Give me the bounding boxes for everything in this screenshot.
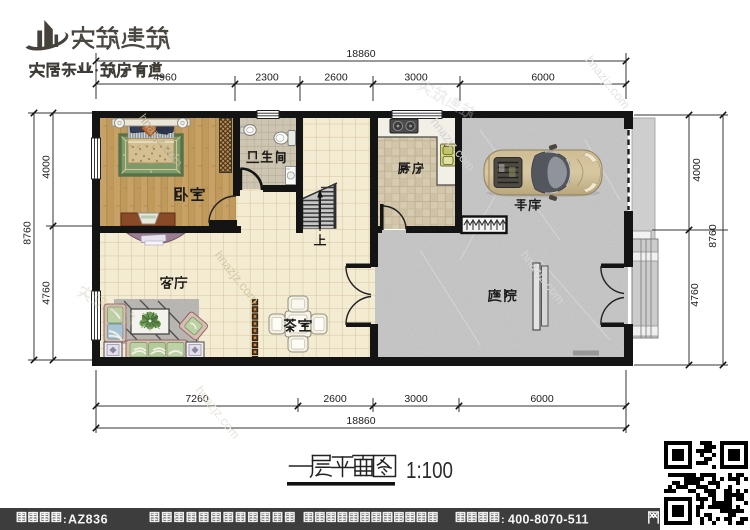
svg-text:6000: 6000 <box>531 72 555 84</box>
svg-text:2600: 2600 <box>324 72 348 84</box>
svg-text:2600: 2600 <box>323 393 347 405</box>
svg-text:400-8070-511: 400-8070-511 <box>508 513 589 527</box>
svg-text:1:100: 1:100 <box>406 457 453 483</box>
svg-text::: : <box>501 514 505 526</box>
svg-text::: : <box>63 514 67 526</box>
svg-text:hnazjz.com: hnazjz.com <box>193 383 243 441</box>
svg-text:4760: 4760 <box>689 283 701 307</box>
svg-text:4960: 4960 <box>153 72 177 84</box>
svg-text:2300: 2300 <box>255 72 279 84</box>
svg-text:6000: 6000 <box>530 393 554 405</box>
svg-text:4000: 4000 <box>691 158 703 182</box>
svg-text:4000: 4000 <box>41 155 53 179</box>
svg-text:4760: 4760 <box>41 281 53 305</box>
svg-text:8760: 8760 <box>707 224 719 248</box>
svg-text:AZ836: AZ836 <box>68 513 108 527</box>
svg-text:18860: 18860 <box>346 48 375 60</box>
svg-text:8760: 8760 <box>22 221 34 245</box>
svg-text:18860: 18860 <box>346 415 375 427</box>
svg-text:3000: 3000 <box>404 393 428 405</box>
